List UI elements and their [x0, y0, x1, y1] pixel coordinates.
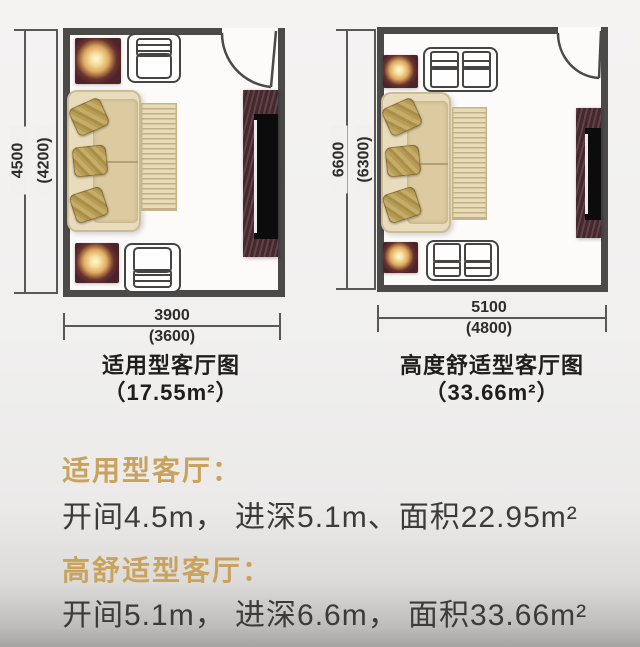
- loveseat-seat: [430, 66, 459, 88]
- armchair-top: [127, 33, 181, 83]
- tv: [254, 114, 278, 239]
- width-dim-main: 3900: [112, 307, 232, 325]
- tv-screen: [254, 120, 257, 233]
- sofa: [381, 92, 451, 233]
- area-rug: [141, 103, 177, 211]
- loveseat-bottom: [426, 240, 499, 281]
- plan-caption-area: （33.66m²）: [362, 379, 622, 406]
- width-dim-line: [63, 325, 281, 327]
- throw-pillow: [385, 144, 422, 177]
- depth-dim-cap-top: [14, 29, 58, 31]
- loveseat-top: [423, 47, 498, 92]
- plan-caption-title: 适用型客厅图: [51, 352, 291, 379]
- width-dim-inner: (3600): [112, 328, 232, 346]
- depth-dim-inner: (6300): [356, 126, 373, 194]
- door-arc: [554, 29, 606, 83]
- width-dim-line: [377, 317, 607, 319]
- spec-detail-comfort: 开间5.1m， 进深6.6m， 面积33.66m²: [62, 590, 587, 634]
- spec-title-comfort: 高舒适型客厅：: [62, 549, 272, 589]
- plan-caption-area: （17.55m²）: [51, 379, 291, 406]
- depth-dim-cap-bottom: [336, 288, 376, 290]
- width-dim-tick-left: [377, 305, 379, 332]
- plan-caption-title: 高度舒适型客厅图: [362, 352, 622, 379]
- floor-lamp-top: [75, 38, 121, 84]
- area-rug: [452, 107, 487, 220]
- plan-caption: 高度舒适型客厅图 （33.66m²）: [362, 352, 622, 406]
- tv-cabinet: [243, 90, 278, 257]
- depth-dim-line-inner: [374, 29, 376, 290]
- wall-bottom: [377, 285, 608, 292]
- depth-dim-cap-top: [336, 29, 376, 31]
- width-dim-inner: (4800): [429, 320, 549, 338]
- depth-dim-main: 4500: [10, 127, 27, 195]
- width-dim-tick-right: [605, 305, 607, 332]
- plan-caption: 适用型客厅图 （17.55m²）: [51, 352, 291, 406]
- width-dim-main: 5100: [429, 299, 549, 317]
- loveseat-seat: [464, 243, 492, 263]
- spec-title-standard: 适用型客厅：: [62, 449, 242, 489]
- spec-detail-standard: 开间4.5m， 进深5.1m、面积22.95m²: [62, 492, 578, 536]
- plan-comfort: 6600 (6300) 5100 (4800) 高度舒适型客厅图 （33.66m…: [320, 0, 640, 410]
- armchair-seat: [136, 53, 172, 78]
- depth-dim-line-inner: [56, 29, 58, 294]
- tv: [585, 128, 601, 220]
- armchair-bottom: [124, 243, 181, 293]
- depth-dim-main: 6600: [331, 126, 348, 194]
- throw-pillow: [72, 144, 109, 177]
- tv-screen: [585, 134, 588, 214]
- loveseat-seat: [433, 243, 461, 263]
- tv-cabinet: [576, 108, 601, 238]
- armchair-seat: [133, 247, 171, 272]
- floor-lamp-top: [383, 55, 418, 88]
- floor-lamp-bottom: [75, 243, 119, 283]
- width-dim-tick-right: [279, 313, 281, 340]
- sofa: [67, 90, 141, 232]
- door-arc: [218, 30, 282, 90]
- depth-dim-inner: (4200): [36, 127, 53, 195]
- width-dim-tick-left: [63, 313, 65, 340]
- wall-top: [377, 27, 558, 34]
- floor-lamp-bottom: [383, 242, 418, 273]
- plan-standard: 4500 (4200) 3900 (3600) 适用型客厅图 （17.55m²）: [0, 0, 320, 410]
- depth-dim-cap-bottom: [14, 292, 58, 294]
- loveseat-seat: [462, 66, 491, 88]
